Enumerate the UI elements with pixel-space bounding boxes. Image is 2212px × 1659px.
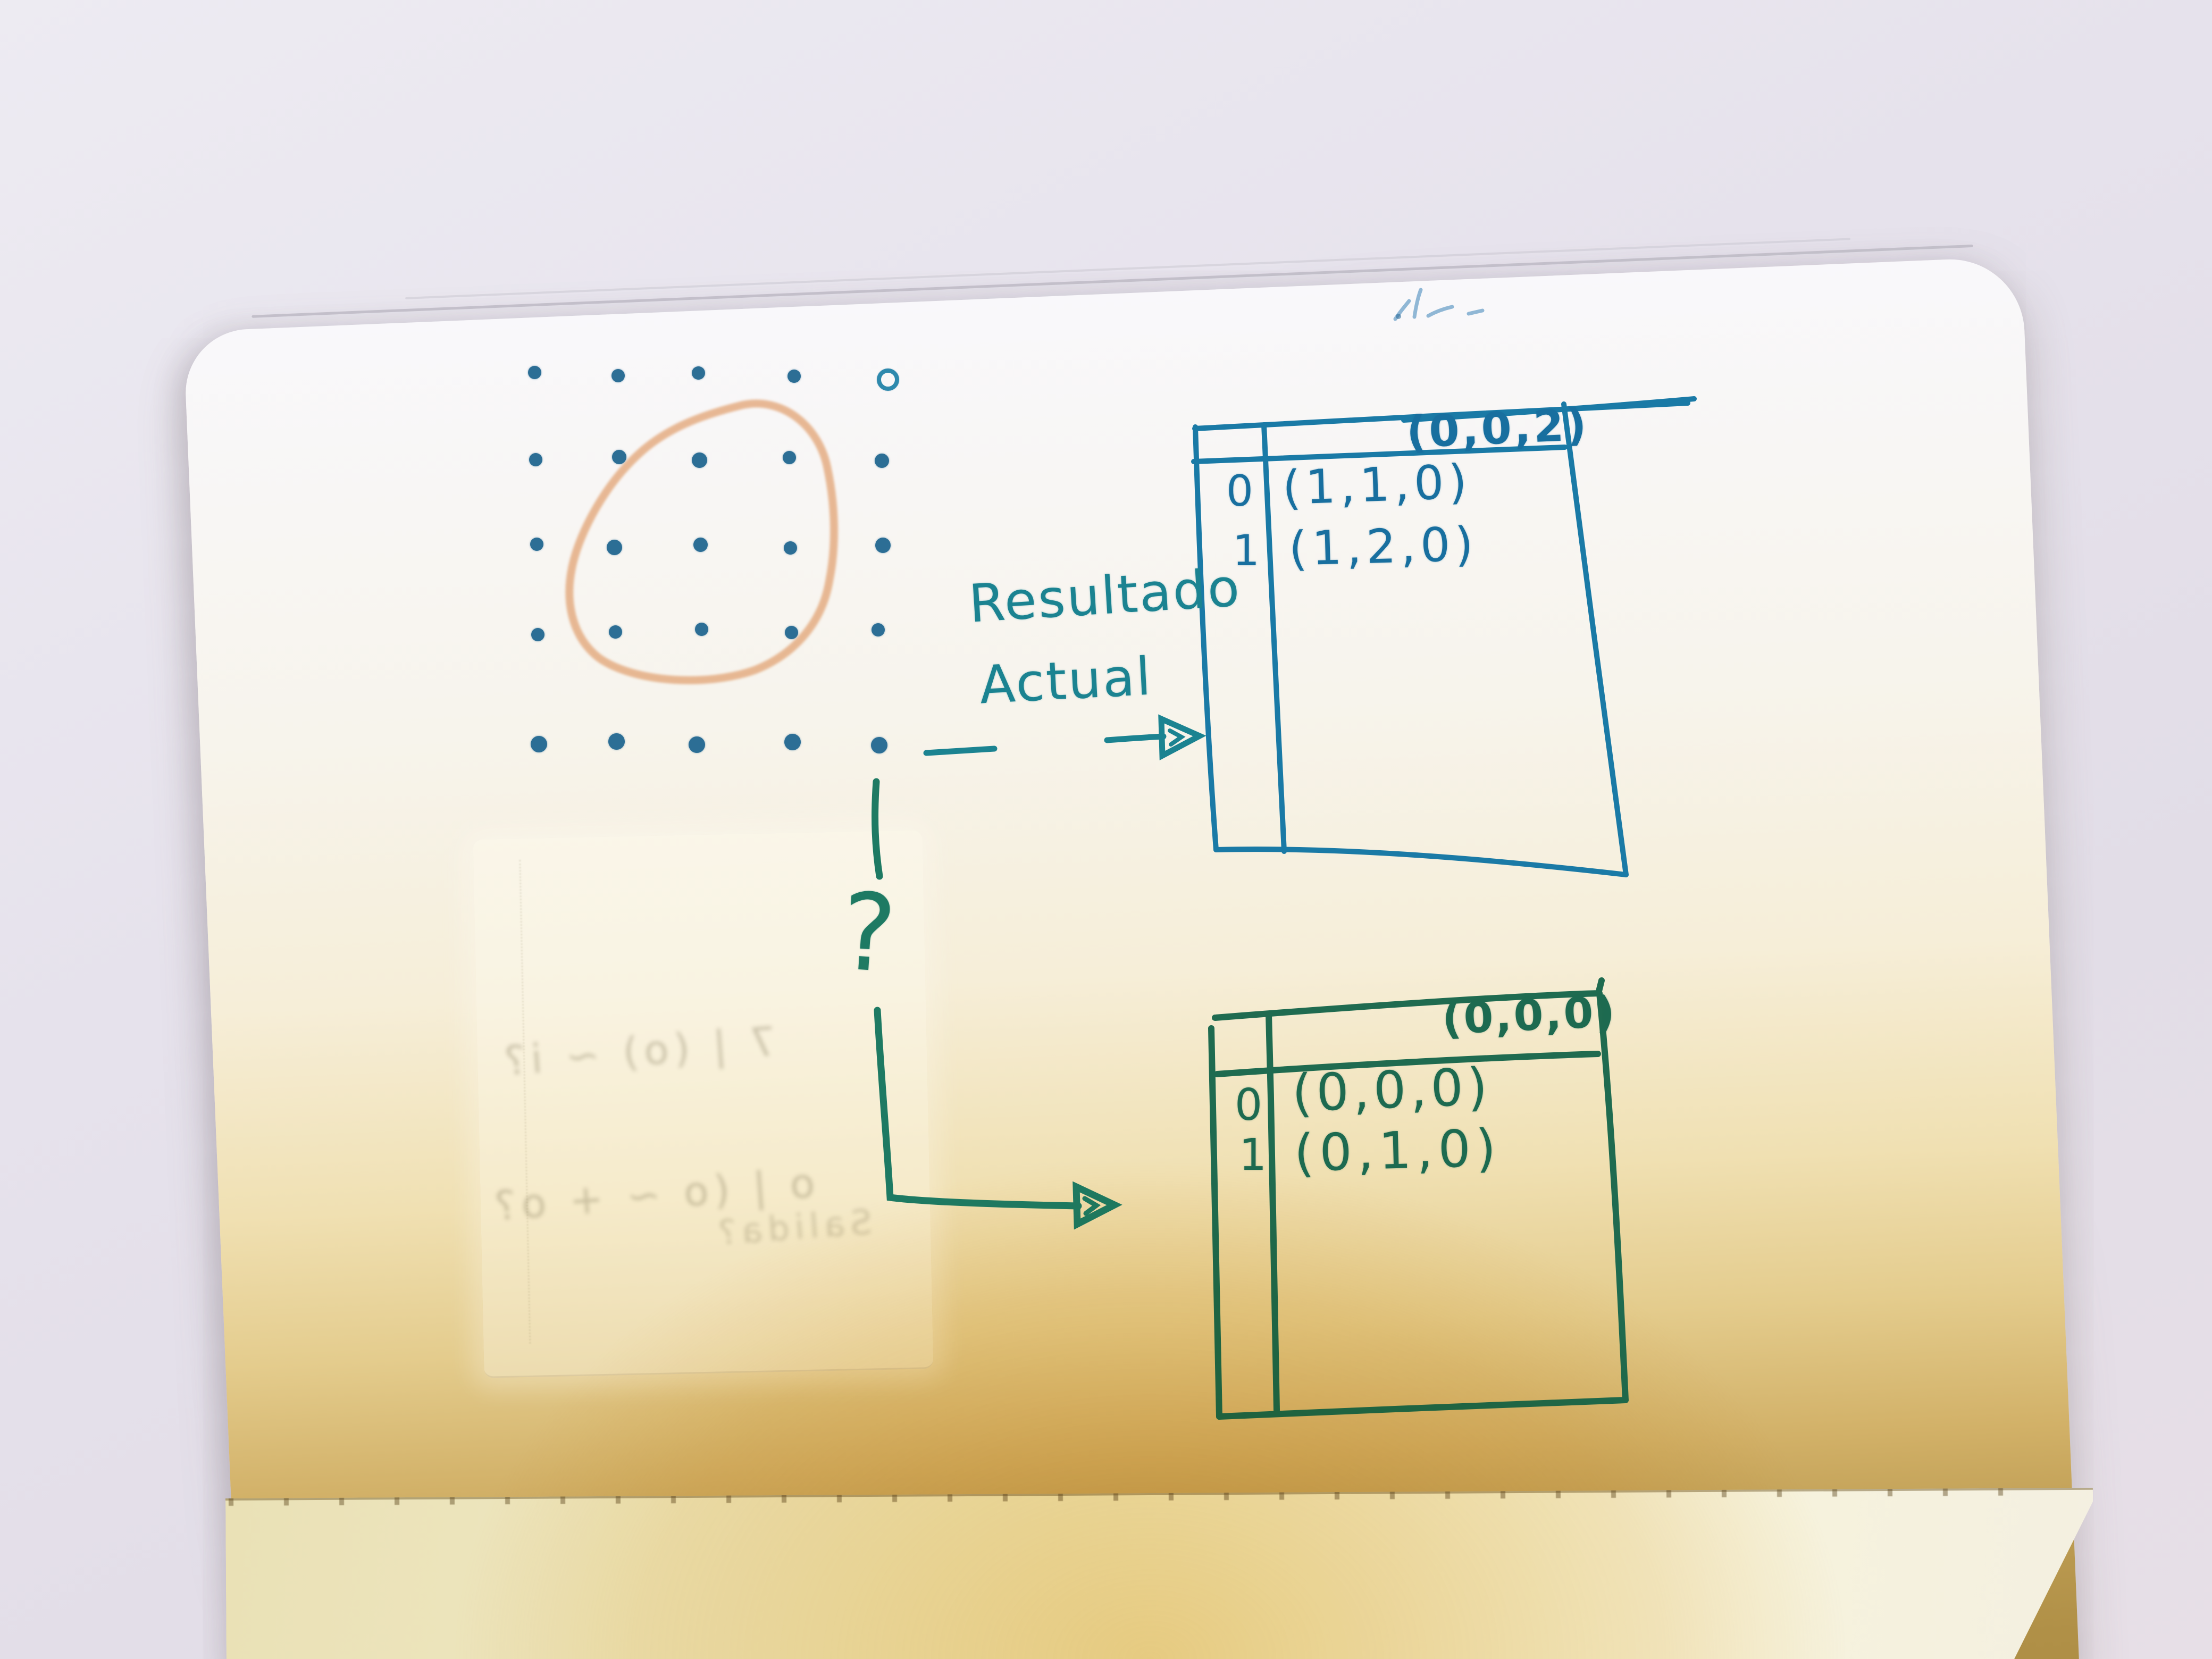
table-bottom-header-tuple: (0,0,0) (1441, 991, 1618, 1041)
table-top-row1-index: 1 (1233, 530, 1260, 572)
table-top-row0-index: 0 (1226, 470, 1253, 513)
table-top-row0-tuple: (1,1,0) (1282, 458, 1472, 512)
grid-dot (784, 541, 797, 555)
table-bottom-row1-tuple: (0,1,0) (1294, 1122, 1502, 1179)
grid-dot (875, 538, 891, 553)
grid-dot (695, 623, 708, 636)
table-top-row1-tuple: (1,2,0) (1288, 521, 1479, 572)
grid-dot (608, 733, 625, 750)
label-actual: Actual (978, 651, 1154, 712)
grid-open-dot (877, 368, 899, 391)
grid-dot (693, 538, 708, 552)
grid-dot (611, 369, 625, 382)
table-bottom-row1-index: 1 (1239, 1134, 1267, 1177)
grid-dot (612, 450, 626, 464)
dot-grid (0, 0, 2212, 1659)
grid-dot (875, 454, 889, 468)
question-mark: ? (838, 879, 899, 989)
grid-dot (871, 737, 887, 753)
grid-dot (872, 623, 885, 636)
grid-dot (529, 453, 542, 466)
grid-dot (783, 451, 796, 464)
grid-dot (692, 453, 707, 468)
grid-dot (531, 736, 547, 752)
grid-dot (531, 628, 544, 641)
grid-dot (692, 366, 705, 380)
grid-dot (530, 538, 543, 551)
grid-dot (785, 626, 798, 639)
label-resultado: Resultado (967, 562, 1242, 630)
grid-dot (528, 366, 541, 379)
table-top-header-tuple: (0,0,2) (1405, 404, 1590, 455)
table-bottom-row0-index: 0 (1235, 1084, 1262, 1127)
grid-dot (689, 736, 705, 753)
grid-dot (784, 734, 801, 750)
grid-dot (607, 540, 622, 555)
grid-dot (609, 625, 622, 639)
grid-dot (787, 370, 801, 383)
table-bottom-row0-tuple: (0,0,0) (1291, 1061, 1492, 1119)
photo-canvas: 7 | (o) ~ i? o | (o ~ + o? Salida? (0, 0, 2212, 1659)
